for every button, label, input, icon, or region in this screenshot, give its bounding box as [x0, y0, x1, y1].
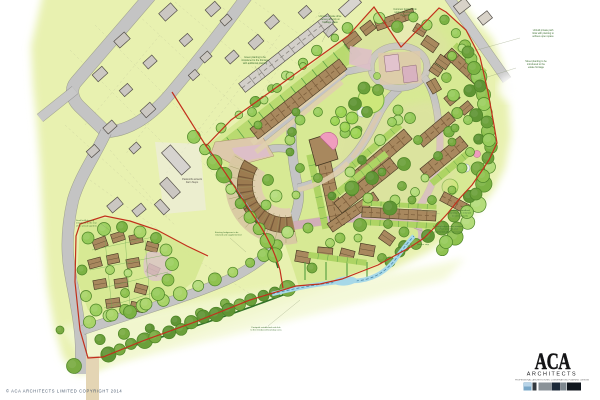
svg-text:© ACA ARCHITECTS LIMITED COPYR: © ACA ARCHITECTS LIMITED COPYRIGHT 2014 — [6, 389, 122, 394]
svg-text:with additional planting: with additional planting — [243, 62, 268, 65]
svg-text:frontage areas: frontage areas — [322, 21, 338, 24]
svg-text:Existing hedges trees retained: Existing hedges trees retained — [433, 225, 463, 228]
svg-text:Small infill planting: Small infill planting — [76, 219, 95, 222]
svg-text:of the private gardens: of the private gardens — [76, 224, 98, 227]
svg-text:Farm Steps: Farm Steps — [186, 181, 199, 184]
svg-text:augmented where necessary: augmented where necessary — [434, 230, 463, 233]
svg-text:Footpath established safe link: Footpath established safe link — [252, 326, 282, 329]
svg-text:planting to be retained: planting to be retained — [449, 212, 471, 215]
svg-text:Service strip: Service strip — [417, 243, 430, 246]
svg-text:ARCHITECTS: ARCHITECTS — [527, 372, 577, 378]
svg-text:Existing hedgerow to be: Existing hedgerow to be — [215, 231, 239, 234]
svg-text:to the introduced boundary are: to the introduced boundary area — [250, 329, 282, 332]
svg-text:achieve open space: achieve open space — [532, 35, 554, 38]
svg-text:where possible and: where possible and — [439, 228, 459, 231]
svg-text:to existing levels: to existing levels — [452, 214, 469, 217]
svg-text:introduced to the rear: introduced to the rear — [76, 222, 97, 225]
svg-text:retained and supplemented: retained and supplemented — [215, 234, 242, 237]
svg-text:Extensive woodland: Extensive woodland — [450, 209, 470, 212]
svg-text:the north: the north — [400, 14, 410, 17]
svg-text:estate frontage: estate frontage — [528, 66, 545, 69]
svg-text:PROFESSIONAL | ARCHITECTURE |: PROFESSIONAL | ARCHITECTURE | CONSERVATI… — [515, 379, 589, 382]
